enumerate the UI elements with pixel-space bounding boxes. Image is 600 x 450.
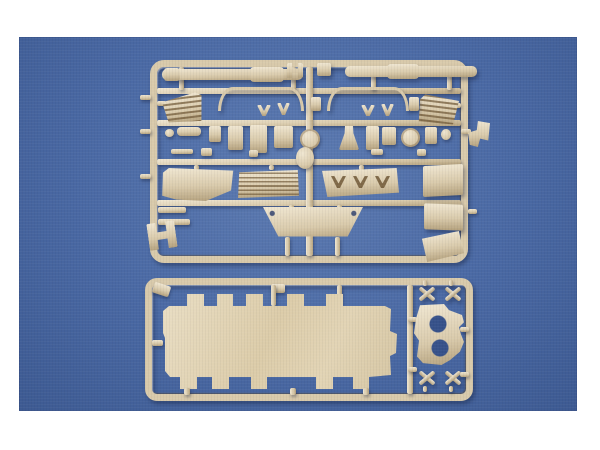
sprue-gate: [152, 340, 163, 346]
chevron-plate: [322, 168, 399, 197]
knob-fitting: [441, 129, 451, 140]
box-fitting: [250, 125, 267, 153]
cross-link: [417, 368, 436, 388]
sprue-gate: [335, 237, 340, 256]
sprue-gate: [184, 388, 190, 395]
edge-stub: [140, 129, 151, 134]
bow-rail-right: [327, 87, 409, 111]
sprue-gate: [408, 367, 417, 372]
runner-v-right: [407, 285, 413, 394]
disc-fitting: [300, 129, 320, 149]
sprue-gate: [285, 237, 290, 256]
box-fitting: [425, 127, 437, 144]
barrel-sleeve: [387, 64, 419, 79]
disc-fitting: [401, 128, 420, 147]
bar-fitting: [158, 207, 186, 213]
chevron-icon: [375, 176, 390, 188]
gun-barrel-left: [162, 69, 303, 80]
cross-link: [417, 284, 436, 303]
sprue-gate: [359, 165, 364, 170]
sprue-gate: [423, 280, 427, 286]
tiny-fitting: [371, 149, 383, 155]
edge-flag-part: [468, 121, 490, 147]
sprue-gate: [449, 386, 453, 392]
cross-link: [443, 284, 462, 303]
cylinder-fitting: [177, 127, 201, 136]
page: { "scene": { "type": "product-photo", "s…: [0, 0, 600, 450]
tiny-fitting: [201, 148, 212, 156]
top-block: [317, 63, 331, 76]
small-bracket: [409, 97, 419, 111]
small-bracket: [311, 97, 321, 111]
sprue-gate: [271, 285, 276, 306]
box-fitting: [366, 126, 379, 150]
barrel-sleeve: [250, 67, 284, 82]
sprue-gate: [460, 372, 469, 377]
chevron-marks: [322, 168, 399, 188]
cross-link: [443, 368, 462, 388]
gun-barrel-right: [345, 66, 477, 77]
box-fitting: [274, 126, 293, 148]
sprue-gate: [460, 327, 469, 332]
castellated-hull-plate: [163, 293, 400, 390]
sprue-gate: [449, 280, 453, 286]
glacis-plate: [262, 207, 364, 239]
box-fitting: [228, 126, 243, 150]
box-fitting: [382, 127, 396, 145]
hatch-plate: [424, 203, 463, 230]
knob-fitting: [165, 129, 174, 137]
chevron-icon: [331, 176, 346, 188]
tiny-fitting: [417, 149, 426, 156]
edge-stub: [468, 209, 477, 214]
edge-stub: [140, 174, 151, 179]
oval-hub: [296, 147, 314, 169]
edge-stub: [140, 95, 151, 100]
hatch-plate: [423, 164, 463, 197]
sprue-gate: [423, 386, 427, 392]
bar-fitting: [171, 149, 193, 154]
muzzle-step: [164, 68, 180, 81]
chevron-icon: [353, 176, 368, 188]
blue-backdrop-photo: [19, 37, 577, 411]
louvered-plate: [238, 170, 299, 198]
sprue-gate: [363, 388, 369, 395]
sprue-gate: [290, 388, 296, 395]
sprue-gate: [269, 165, 274, 170]
tiny-fitting: [249, 150, 258, 157]
box-fitting: [209, 126, 221, 142]
